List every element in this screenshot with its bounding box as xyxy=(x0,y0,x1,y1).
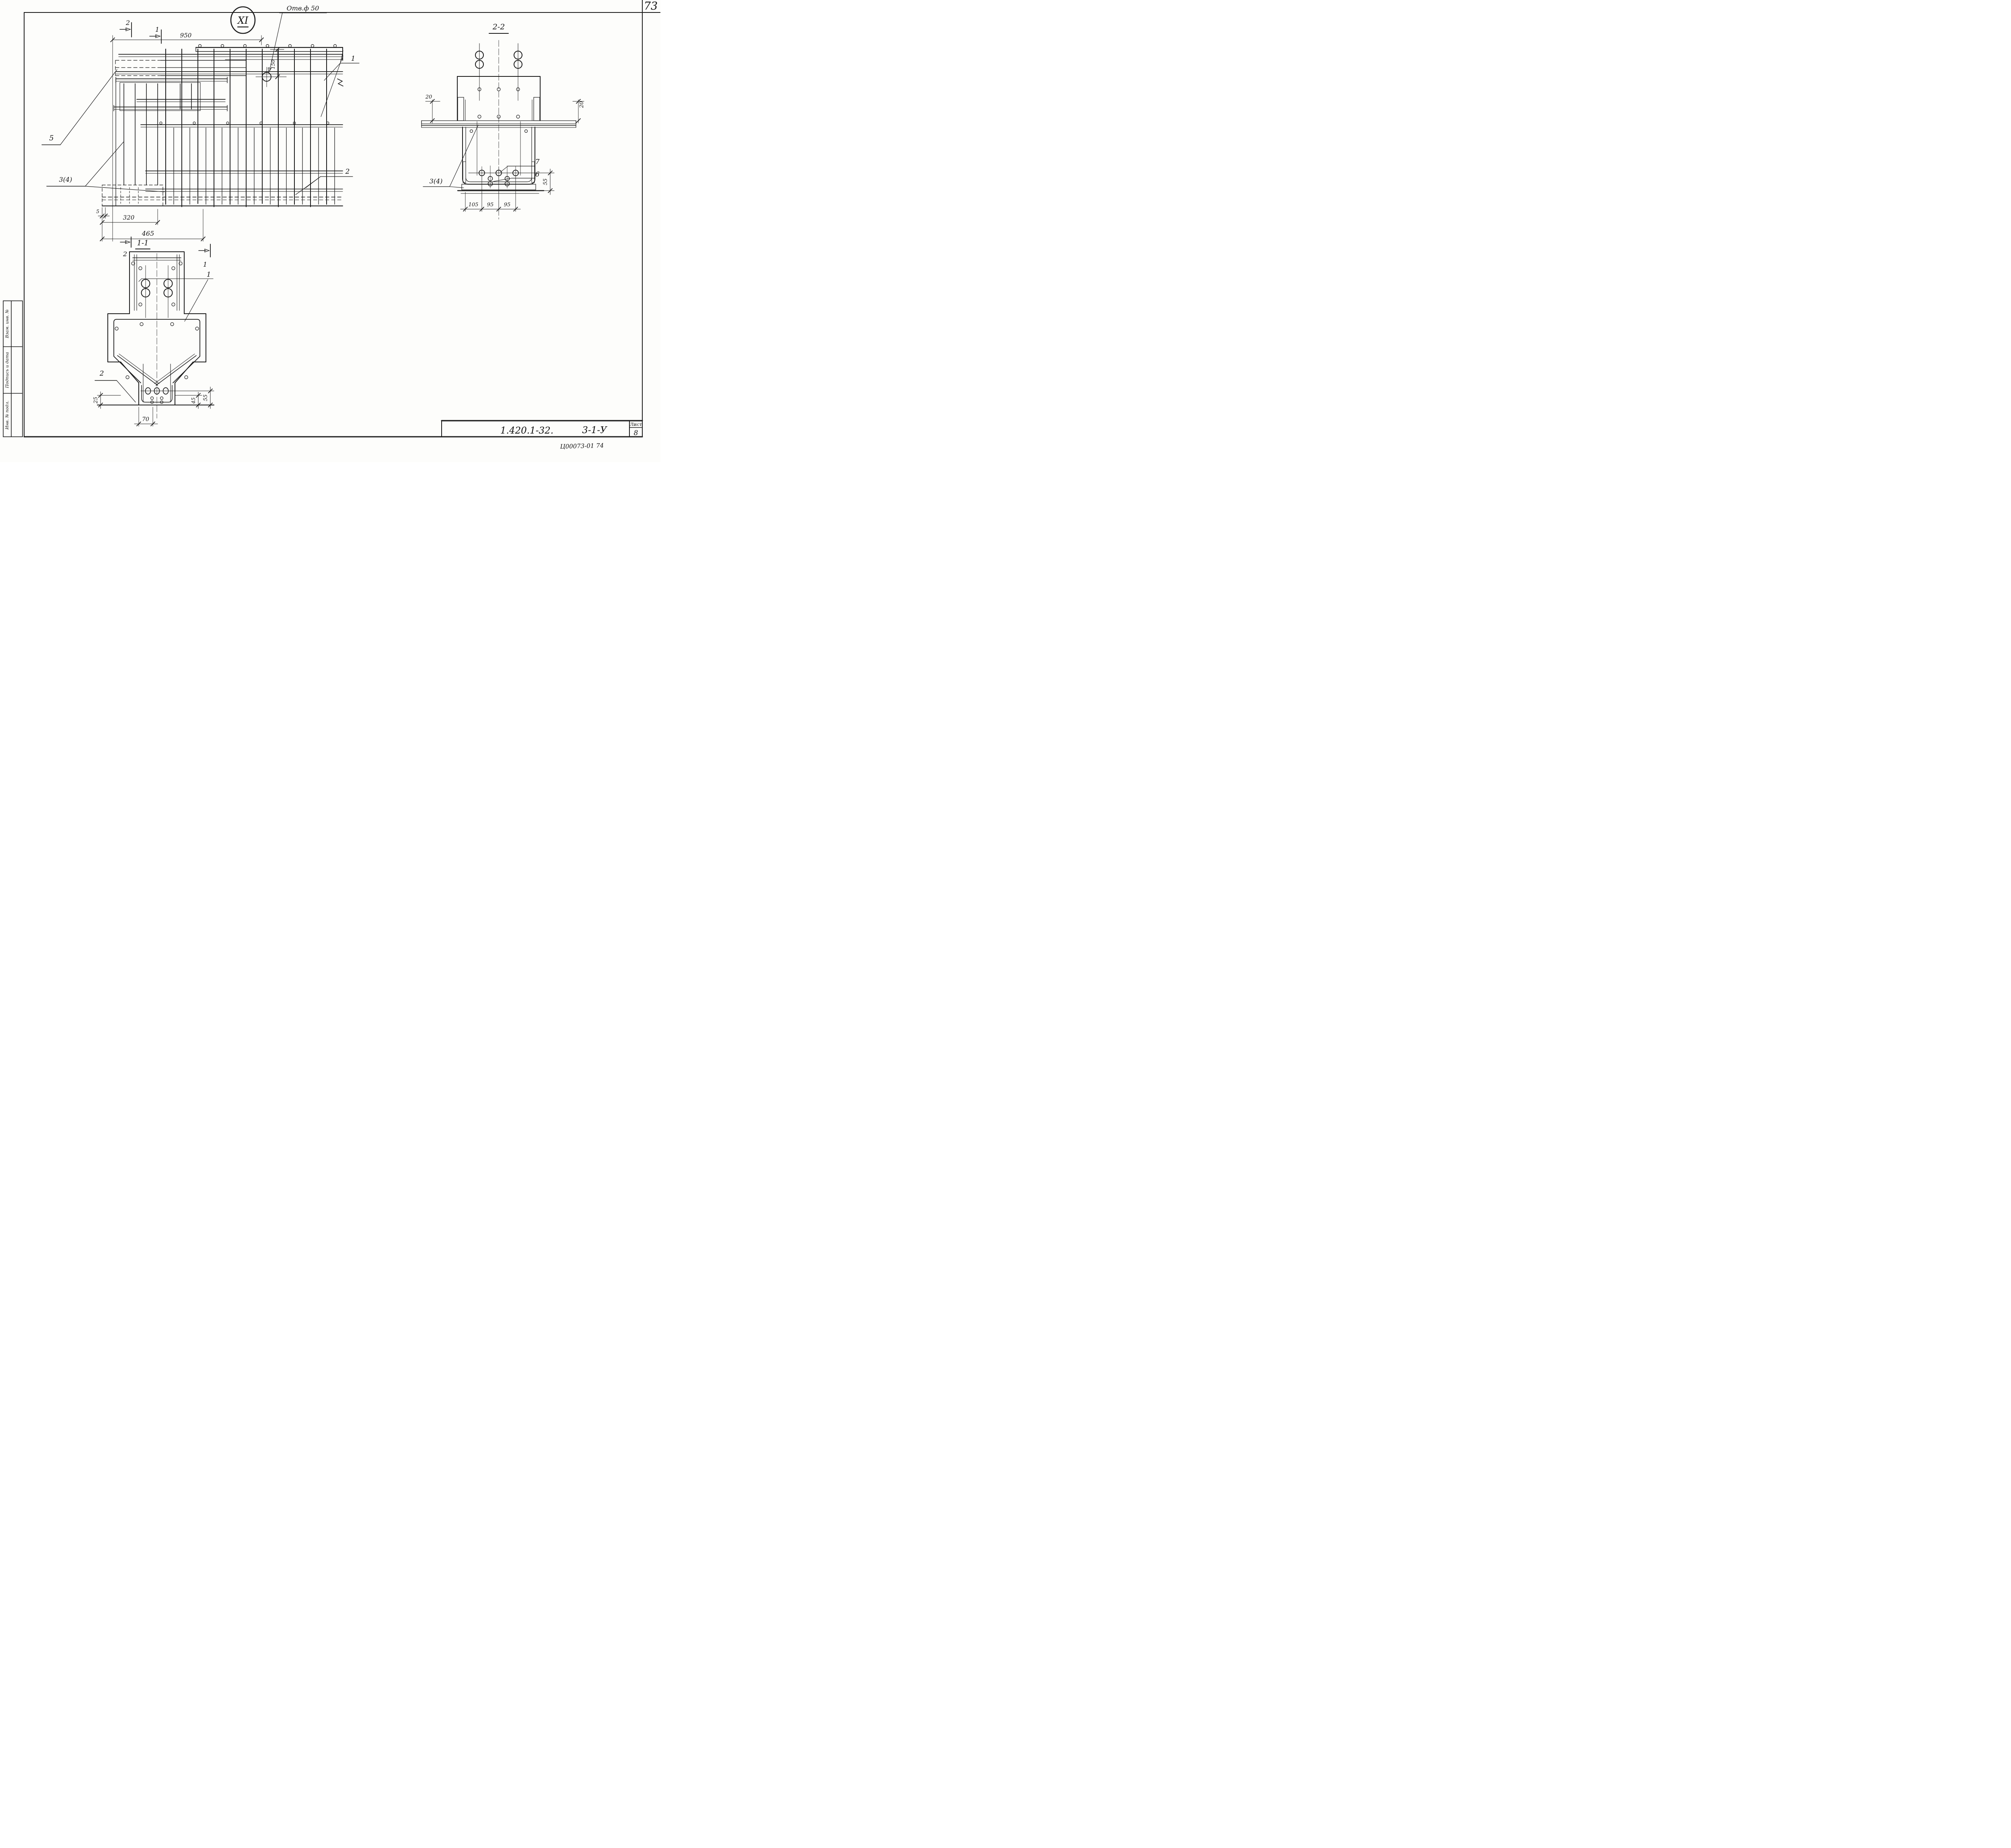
title-sheet-label: Лист xyxy=(630,421,642,427)
wall-plate-left xyxy=(463,162,466,183)
dim-70-label: 70 xyxy=(142,416,149,423)
callout-2-sec11: 2 xyxy=(95,370,136,402)
dim-20-right-label: 20 xyxy=(579,101,585,109)
section-marker-2-top: 2 xyxy=(120,19,132,37)
dim-25-sec11: 25 xyxy=(93,392,103,409)
section-2-2-title: 2-2 xyxy=(489,23,508,33)
archive-code-label: Ц00073-01 74 xyxy=(560,442,604,450)
drawing-frame xyxy=(24,0,660,437)
section-1-1-title: 1-1 xyxy=(136,239,150,249)
dim-20-right: 20 xyxy=(573,99,585,123)
section-marker-1-top: 1 xyxy=(150,26,161,43)
callout-2-main: 2 xyxy=(296,168,353,195)
dim-70-sec11: 70 xyxy=(134,407,158,426)
dim-95-b-label: 95 xyxy=(504,202,511,208)
dim-950-label: 950 xyxy=(180,32,192,39)
callout-3-4-main: 3(4) xyxy=(47,142,164,192)
drawing-sheet: 73 Взам. инв. № Подпись и дата Инв. № по… xyxy=(0,0,660,462)
console-outline xyxy=(115,60,246,76)
detail-mark-label: XI xyxy=(237,15,249,26)
callout-7-sec22: 7 xyxy=(500,158,540,172)
page-number-label: 73 xyxy=(644,0,658,12)
title-doc-suffix: 3-1-У xyxy=(582,425,608,436)
callout-2-main-label: 2 xyxy=(345,168,350,176)
mid-horizontal-bars xyxy=(116,72,343,173)
break-mark xyxy=(337,79,343,86)
dim-55-sec11-label: 55 xyxy=(203,395,209,401)
callout-3-4-sec22: 3(4) xyxy=(423,125,478,188)
section-marker-1-top-label: 1 xyxy=(155,26,159,33)
stamp-vzam-inv: Взам. инв. № xyxy=(5,309,10,339)
upper-horizontal-bars xyxy=(119,54,343,60)
hole-label: Отв.ф 50 xyxy=(287,4,319,12)
drawing-canvas: 73 Взам. инв. № Подпись и дата Инв. № по… xyxy=(0,0,660,462)
dim-320: 320 xyxy=(100,209,160,225)
callout-2-sec11-label: 2 xyxy=(99,370,104,378)
dim-row-105-95-95: 105 95 95 xyxy=(461,177,520,212)
callout-3-4-main-label: 3(4) xyxy=(59,176,72,183)
dim-45-sec11: 45 xyxy=(190,392,200,409)
section-marker-1-bottom: 1 xyxy=(199,244,210,268)
detail-mark-circle: XI xyxy=(231,7,255,33)
dim-105-label: 105 xyxy=(469,202,479,208)
callout-5-main: 5 xyxy=(42,70,117,145)
dim-25-label: 25 xyxy=(93,397,99,404)
dim-950: 950 xyxy=(111,32,263,241)
section-view-2-2: 2-2 xyxy=(422,23,585,219)
title-block: 1.420.1-32. 3-1-У Лист 8 Ц00073-01 74 xyxy=(442,421,642,450)
dim-45-label: 45 xyxy=(190,397,196,404)
callout-1-sec11-label: 1 xyxy=(207,271,211,279)
side-stamp-column: Взам. инв. № Подпись и дата Инв. № подл. xyxy=(3,301,23,437)
section-view-1-1: 1-1 2 xyxy=(93,237,214,426)
dim-150-label: 150 xyxy=(270,60,276,69)
callout-5-main-label: 5 xyxy=(49,134,53,142)
dim-95-a-label: 95 xyxy=(487,202,494,208)
main-elevation-view: XI 950 2 1 xyxy=(42,4,359,268)
dim-55-sec22-label: 55 xyxy=(543,179,549,185)
section-marker-2-top-label: 2 xyxy=(125,19,130,27)
callout-6-label: 6 xyxy=(535,171,540,179)
weld-plate-right xyxy=(534,97,540,121)
section-1-1-title-label: 1-1 xyxy=(137,239,149,247)
dim-20-left: 20 xyxy=(425,94,440,123)
sec22-bottom-bars xyxy=(469,166,554,188)
stamp-podpis-data: Подпись и дата xyxy=(5,352,10,389)
dim-5-label: 5 xyxy=(96,208,99,214)
callout-3-4-sec22-label: 3(4) xyxy=(430,177,443,185)
wall-plate-right xyxy=(532,162,535,183)
callout-7-label: 7 xyxy=(535,158,540,166)
left-mesh-unit xyxy=(114,77,227,206)
title-doc-number: 1.420.1-32. xyxy=(500,426,553,436)
stamp-inv-podl: Инв. № подл. xyxy=(5,401,10,430)
cage-bottom xyxy=(102,185,343,206)
top-plate xyxy=(196,45,343,61)
weld-plate-left xyxy=(458,97,464,121)
dim-320-label: 320 xyxy=(123,214,135,221)
title-sheet-number: 8 xyxy=(634,429,638,437)
page-number: 73 xyxy=(644,0,658,12)
section-marker-1-bottom-label: 1 xyxy=(203,261,207,268)
dim-465-label: 465 xyxy=(142,230,154,237)
callout-1-main-label: 1 xyxy=(351,55,356,63)
section-2-2-title-label: 2-2 xyxy=(492,23,505,31)
dim-5: 5 xyxy=(96,208,109,241)
dim-465: 465 xyxy=(100,209,205,241)
dim-20-left-label: 20 xyxy=(425,94,432,100)
section-marker-2-bottom-label: 2 xyxy=(123,250,127,258)
